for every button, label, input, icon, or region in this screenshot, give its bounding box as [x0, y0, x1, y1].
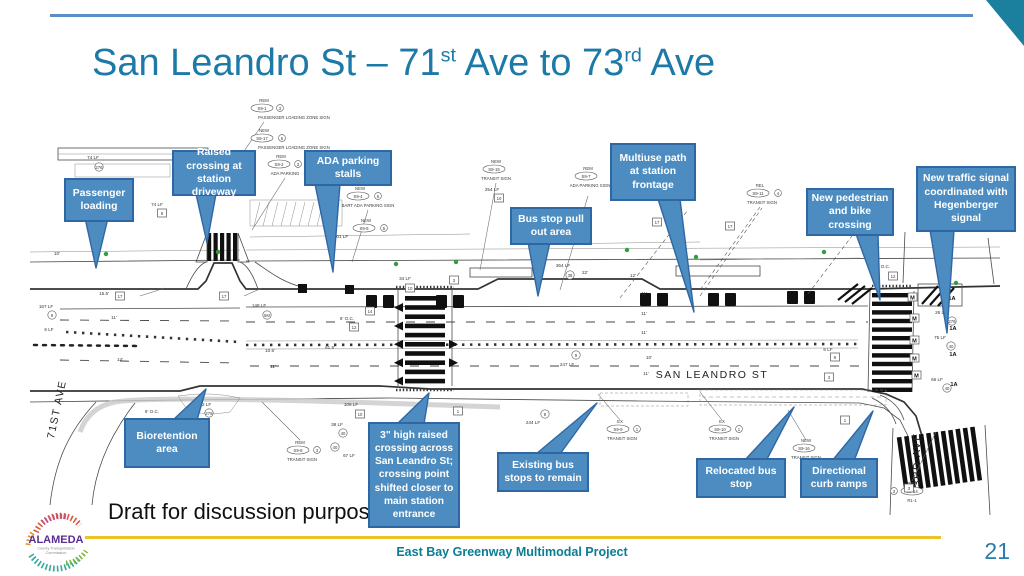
callout-existing-bus-stops: Existing bus stops to remain — [497, 452, 589, 492]
callout-text: New traffic signal coordinated with Hege… — [921, 172, 1011, 225]
slide: San Leandro St – 71st Ave to 73rd Ave — [0, 0, 1024, 576]
svg-text:40: 40 — [333, 445, 338, 450]
svg-text:S9-2: S9-2 — [274, 162, 284, 167]
svg-text:M: M — [912, 317, 917, 323]
sign-tag: REL S9-11 4 TRANSIT SIGN — [747, 183, 781, 205]
draft-note: Draft for discussion purposes — [108, 499, 393, 525]
callout-text: Relocated bus stop — [701, 465, 781, 492]
callout-text: Directional curb ramps — [805, 465, 873, 492]
svg-text:66 LF: 66 LF — [931, 377, 943, 382]
svg-text:17: 17 — [118, 294, 123, 299]
callout-text: Multiuse path at station frontage — [615, 152, 691, 192]
svg-text:S9-1: S9-1 — [257, 106, 267, 111]
title-text: Ave — [642, 42, 715, 84]
sign-tag: NEW S9-5 5 — [353, 218, 387, 232]
callout-bus-stop-pull-out: Bus stop pull out area — [510, 207, 592, 245]
callout-ada-parking-stalls: ADA parking stalls — [304, 150, 392, 186]
svg-text:254 LF: 254 LF — [485, 187, 499, 192]
svg-text:17: 17 — [222, 294, 227, 299]
svg-text:22': 22' — [582, 270, 588, 275]
svg-text:61.5': 61.5' — [325, 345, 335, 350]
svg-text:S9-17: S9-17 — [256, 136, 268, 141]
pavement-markings — [104, 248, 958, 406]
sign-tag: REM S9-7 ADA PARKING SIGN — [570, 166, 611, 188]
svg-text:34 LF: 34 LF — [399, 276, 411, 281]
svg-text:NEW: NEW — [361, 218, 372, 223]
svg-text:75 LF: 75 LF — [934, 335, 946, 340]
svg-text:14': 14' — [117, 357, 123, 362]
callout-new-traffic-signal: New traffic signal coordinated with Hege… — [916, 166, 1016, 232]
svg-text:5M: 5M — [264, 313, 270, 318]
svg-text:11': 11' — [641, 311, 647, 316]
corner-triangle — [986, 0, 1024, 46]
svg-text:10: 10 — [408, 286, 413, 291]
svg-text:12: 12 — [352, 325, 357, 330]
svg-text:167 LF: 167 LF — [39, 304, 53, 309]
svg-text:S9-7: S9-7 — [581, 174, 591, 179]
svg-text:TRANSIT SIGN: TRANSIT SIGN — [709, 436, 739, 441]
svg-text:TRANSIT SIGN: TRANSIT SIGN — [747, 200, 777, 205]
svg-text:REL: REL — [756, 183, 765, 188]
svg-text:17: 17 — [728, 224, 733, 229]
svg-text:S9-5: S9-5 — [359, 226, 369, 231]
callout-raised-crossing-san-leandro: 3" high raised crossing across San Leand… — [368, 422, 460, 528]
svg-text:74 LF: 74 LF — [151, 202, 163, 207]
svg-text:BART ADA PARKING SIGN: BART ADA PARKING SIGN — [342, 203, 395, 208]
svg-text:6 LF: 6 LF — [823, 347, 832, 352]
svg-text:REM: REM — [295, 440, 305, 445]
svg-text:10.5': 10.5' — [265, 348, 275, 353]
callout-text: 3" high raised crossing across San Leand… — [373, 429, 455, 520]
footer-project-title: East Bay Greenway Multimodal Project — [0, 545, 1024, 559]
svg-text:NEW: NEW — [355, 186, 366, 191]
title-text: Ave to 73 — [456, 42, 624, 84]
svg-text:M: M — [912, 357, 917, 363]
callout-raised-crossing-driveway: Raised crossing at station driveway — [172, 150, 256, 196]
svg-text:14: 14 — [368, 309, 373, 314]
sign-tag: REM S9-8 3 TRANSIT SIGN — [287, 440, 320, 462]
svg-text:S9-8: S9-8 — [293, 448, 303, 453]
svg-text:TRANSIT SIGN: TRANSIT SIGN — [287, 457, 317, 462]
footer-divider-line — [85, 536, 941, 539]
svg-text:1A: 1A — [949, 326, 956, 332]
svg-text:1A: 1A — [950, 382, 957, 388]
svg-text:REM: REM — [259, 98, 269, 103]
street-label-71st: 71ST AVE — [45, 379, 69, 440]
top-accent-line — [50, 14, 973, 17]
svg-text:6 LF: 6 LF — [44, 327, 53, 332]
svg-text:ADA PARKING: ADA PARKING — [271, 171, 300, 176]
callout-text: Bus stop pull out area — [515, 213, 587, 240]
callout-text: New pedestrian and bike crossing — [811, 192, 889, 232]
svg-text:S9-9: S9-9 — [613, 427, 623, 432]
svg-text:276: 276 — [95, 165, 103, 170]
svg-text:S9-10: S9-10 — [714, 427, 726, 432]
svg-text:TRANSIT SIGN: TRANSIT SIGN — [481, 176, 511, 181]
callout-text: Passenger loading — [69, 187, 129, 214]
svg-text:11': 11' — [270, 364, 276, 369]
alameda-ctc-logo: ALAMEDA County Transportation Commission — [16, 506, 96, 572]
svg-text:S9-11: S9-11 — [752, 191, 764, 196]
title-sup-st: st — [441, 44, 456, 66]
svg-text:12: 12 — [891, 274, 896, 279]
svg-text:276: 276 — [948, 319, 956, 324]
sign-tag: REM S9-2 3 ADA PARKING — [268, 154, 301, 176]
callout-text: ADA parking stalls — [309, 155, 387, 182]
svg-text:15.5': 15.5' — [99, 291, 109, 296]
svg-text:11': 11' — [641, 291, 647, 296]
svg-text:247 LF: 247 LF — [560, 362, 574, 367]
svg-text:6' O.C.: 6' O.C. — [340, 316, 354, 321]
svg-text:364 LF: 364 LF — [556, 263, 570, 268]
sign-tag: NEW S9-15 TRANSIT SIGN — [481, 159, 511, 181]
svg-text:NEW: NEW — [801, 438, 812, 443]
callout-text: Raised crossing at station driveway — [177, 146, 251, 199]
svg-text:1A: 1A — [949, 352, 956, 358]
sign-tag: EX S9-10 1 TRANSIT SIGN — [709, 419, 742, 441]
svg-text:74 LF: 74 LF — [87, 155, 99, 160]
svg-text:TRANSIT SIGN: TRANSIT SIGN — [607, 436, 637, 441]
svg-text:6' O.C.: 6' O.C. — [145, 409, 159, 414]
svg-text:REM: REM — [276, 154, 286, 159]
callout-directional-curb-ramps: Directional curb ramps — [800, 458, 878, 498]
svg-text:11': 11' — [643, 371, 649, 376]
svg-text:11': 11' — [641, 330, 647, 335]
svg-text:EX: EX — [719, 419, 725, 424]
svg-text:40: 40 — [949, 344, 954, 349]
svg-text:10: 10 — [358, 412, 363, 417]
svg-text:R1-1: R1-1 — [907, 498, 917, 503]
svg-text:NEW: NEW — [491, 159, 502, 164]
leader-lines — [140, 122, 936, 481]
page-number: 21 — [984, 538, 1010, 565]
svg-text:PASSENGER LOADING ZONE SIGN: PASSENGER LOADING ZONE SIGN — [258, 115, 330, 120]
title-text: San Leandro St – 71 — [92, 42, 441, 84]
svg-text:12': 12' — [630, 273, 636, 278]
svg-text:40: 40 — [341, 431, 346, 436]
page-title: San Leandro St – 71st Ave to 73rd Ave — [92, 42, 952, 85]
svg-text:244 LF: 244 LF — [526, 420, 540, 425]
driveway-raised-crossing — [196, 233, 249, 262]
svg-text:38 LF: 38 LF — [331, 422, 343, 427]
svg-text:10': 10' — [646, 355, 652, 360]
svg-text:NEW: NEW — [259, 128, 270, 133]
callout-relocated-bus-stop: Relocated bus stop — [696, 458, 786, 498]
svg-text:M: M — [914, 374, 919, 380]
svg-text:REM: REM — [583, 166, 593, 171]
sign-tag: NEW S9-16 TRANSIT SIGN — [791, 438, 821, 460]
svg-text:M: M — [912, 339, 917, 345]
sign-tag: NEW S9-17 6 PASSENGER LOADING ZONE SIGN — [251, 128, 330, 150]
sign-tag: EX S9-9 1 TRANSIT SIGN — [607, 419, 640, 441]
street-label-main: SAN LEANDRO ST — [656, 369, 769, 381]
callout-passenger-loading: Passenger loading — [64, 178, 134, 222]
svg-text:11': 11' — [111, 315, 117, 320]
svg-text:EX: EX — [617, 419, 623, 424]
svg-text:S9-16: S9-16 — [798, 446, 810, 451]
signal-markers: M M M M M 1A 1A 1A 1A — [908, 293, 958, 388]
svg-text:ADA PARKING SIGN: ADA PARKING SIGN — [570, 183, 611, 188]
svg-text:S9-15: S9-15 — [488, 167, 500, 172]
center-raised-crossing — [394, 287, 458, 390]
svg-text:276: 276 — [205, 411, 213, 416]
svg-text:108 LF: 108 LF — [344, 402, 358, 407]
sign-tag: NEW S9-4 6 BART ADA PARKING SIGN — [342, 186, 395, 208]
callout-text: Existing bus stops to remain — [502, 459, 584, 486]
svg-text:M: M — [910, 296, 915, 302]
svg-text:67 LF: 67 LF — [343, 453, 355, 458]
svg-text:S9-4: S9-4 — [353, 194, 363, 199]
callout-text: Bioretention area — [129, 430, 205, 457]
svg-text:10': 10' — [54, 251, 60, 256]
svg-text:17: 17 — [655, 220, 660, 225]
sign-tag: REM S9-1 3 PASSENGER LOADING ZONE SIGN — [251, 98, 330, 120]
callout-new-ped-bike-crossing: New pedestrian and bike crossing — [806, 188, 894, 236]
title-sup-rd: rd — [624, 44, 642, 66]
svg-text:10: 10 — [497, 196, 502, 201]
callout-multiuse-path: Multiuse path at station frontage — [610, 143, 696, 201]
callout-bioretention-area: Bioretention area — [124, 418, 210, 468]
svg-text:38: 38 — [568, 273, 573, 278]
svg-text:40: 40 — [945, 386, 950, 391]
svg-text:148 LF: 148 LF — [252, 303, 266, 308]
